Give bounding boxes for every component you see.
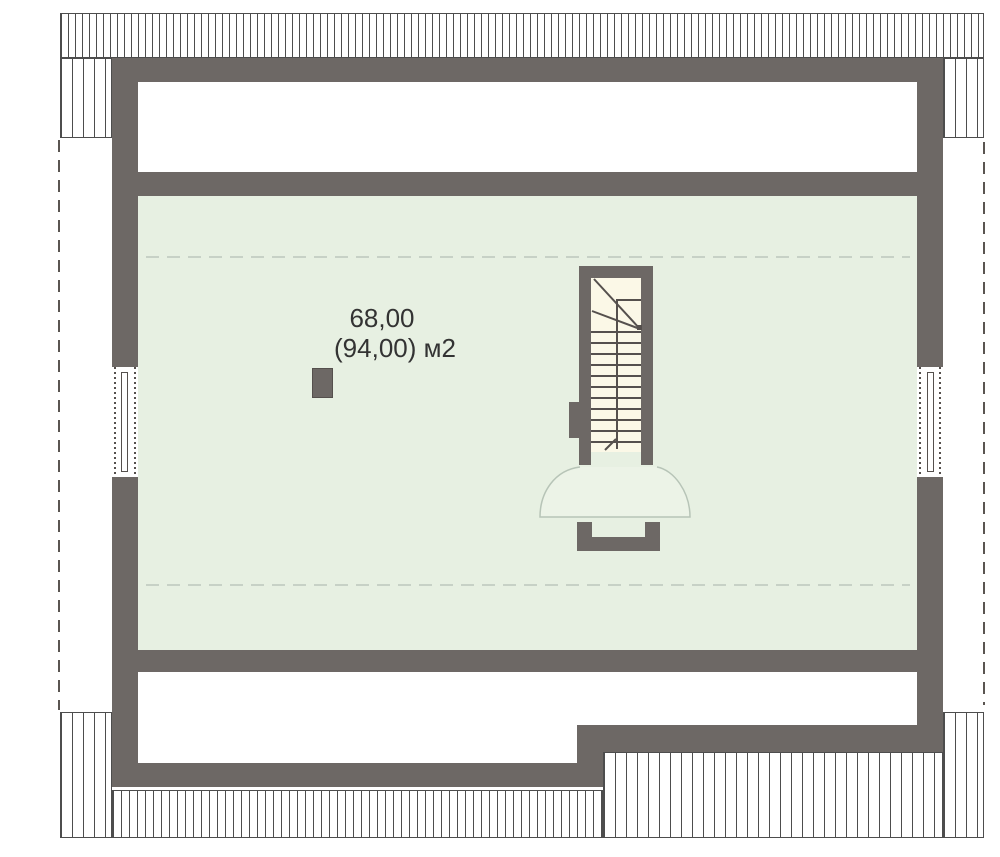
window-right — [917, 367, 943, 477]
roof-edge-dashed-right — [983, 142, 985, 705]
window-right-sill-inner — [919, 367, 921, 477]
wall-bottom-outer-left — [112, 763, 577, 787]
knee-wall-top — [138, 172, 917, 196]
roof-eave-corner-top-left — [60, 58, 112, 138]
window-left-sill-inner — [134, 367, 136, 477]
room-area-value: 68,00 — [336, 305, 428, 332]
roof-eave-corner-top-right — [943, 58, 984, 138]
window-right-sill-outer — [939, 367, 941, 477]
window-left-frame — [121, 372, 128, 472]
stair-upper-flight-edge — [616, 299, 641, 301]
roof-edge-dashed-left — [58, 140, 60, 710]
roof-eave-top — [60, 13, 984, 58]
window-left-sill-outer — [114, 367, 116, 477]
knee-wall-bottom — [138, 650, 917, 672]
room-area-total: (94,00) м2 — [327, 335, 463, 362]
ceiling-height-line-upper — [146, 256, 910, 258]
window-left — [112, 367, 138, 477]
wall-bottom-step — [577, 725, 603, 787]
stair-wall-right — [641, 266, 653, 465]
roof-eave-corner-bottom-left — [60, 712, 112, 838]
roof-eave-bottom-right — [603, 752, 943, 838]
attic-room-floor — [138, 196, 917, 650]
stair-wall-left — [579, 266, 591, 465]
roof-eave-bottom-left — [112, 790, 603, 838]
floor-plan-canvas: 68,00 (94,00) м2 — [0, 0, 1000, 857]
stair-center-stringer — [616, 300, 618, 449]
chimney-block — [312, 368, 333, 398]
wall-bottom-outer-right — [603, 725, 943, 752]
window-right-frame — [927, 372, 934, 472]
wall-top-outer — [112, 58, 943, 82]
ceiling-height-line-lower — [146, 584, 910, 586]
roof-eave-corner-bottom-right — [943, 712, 984, 838]
